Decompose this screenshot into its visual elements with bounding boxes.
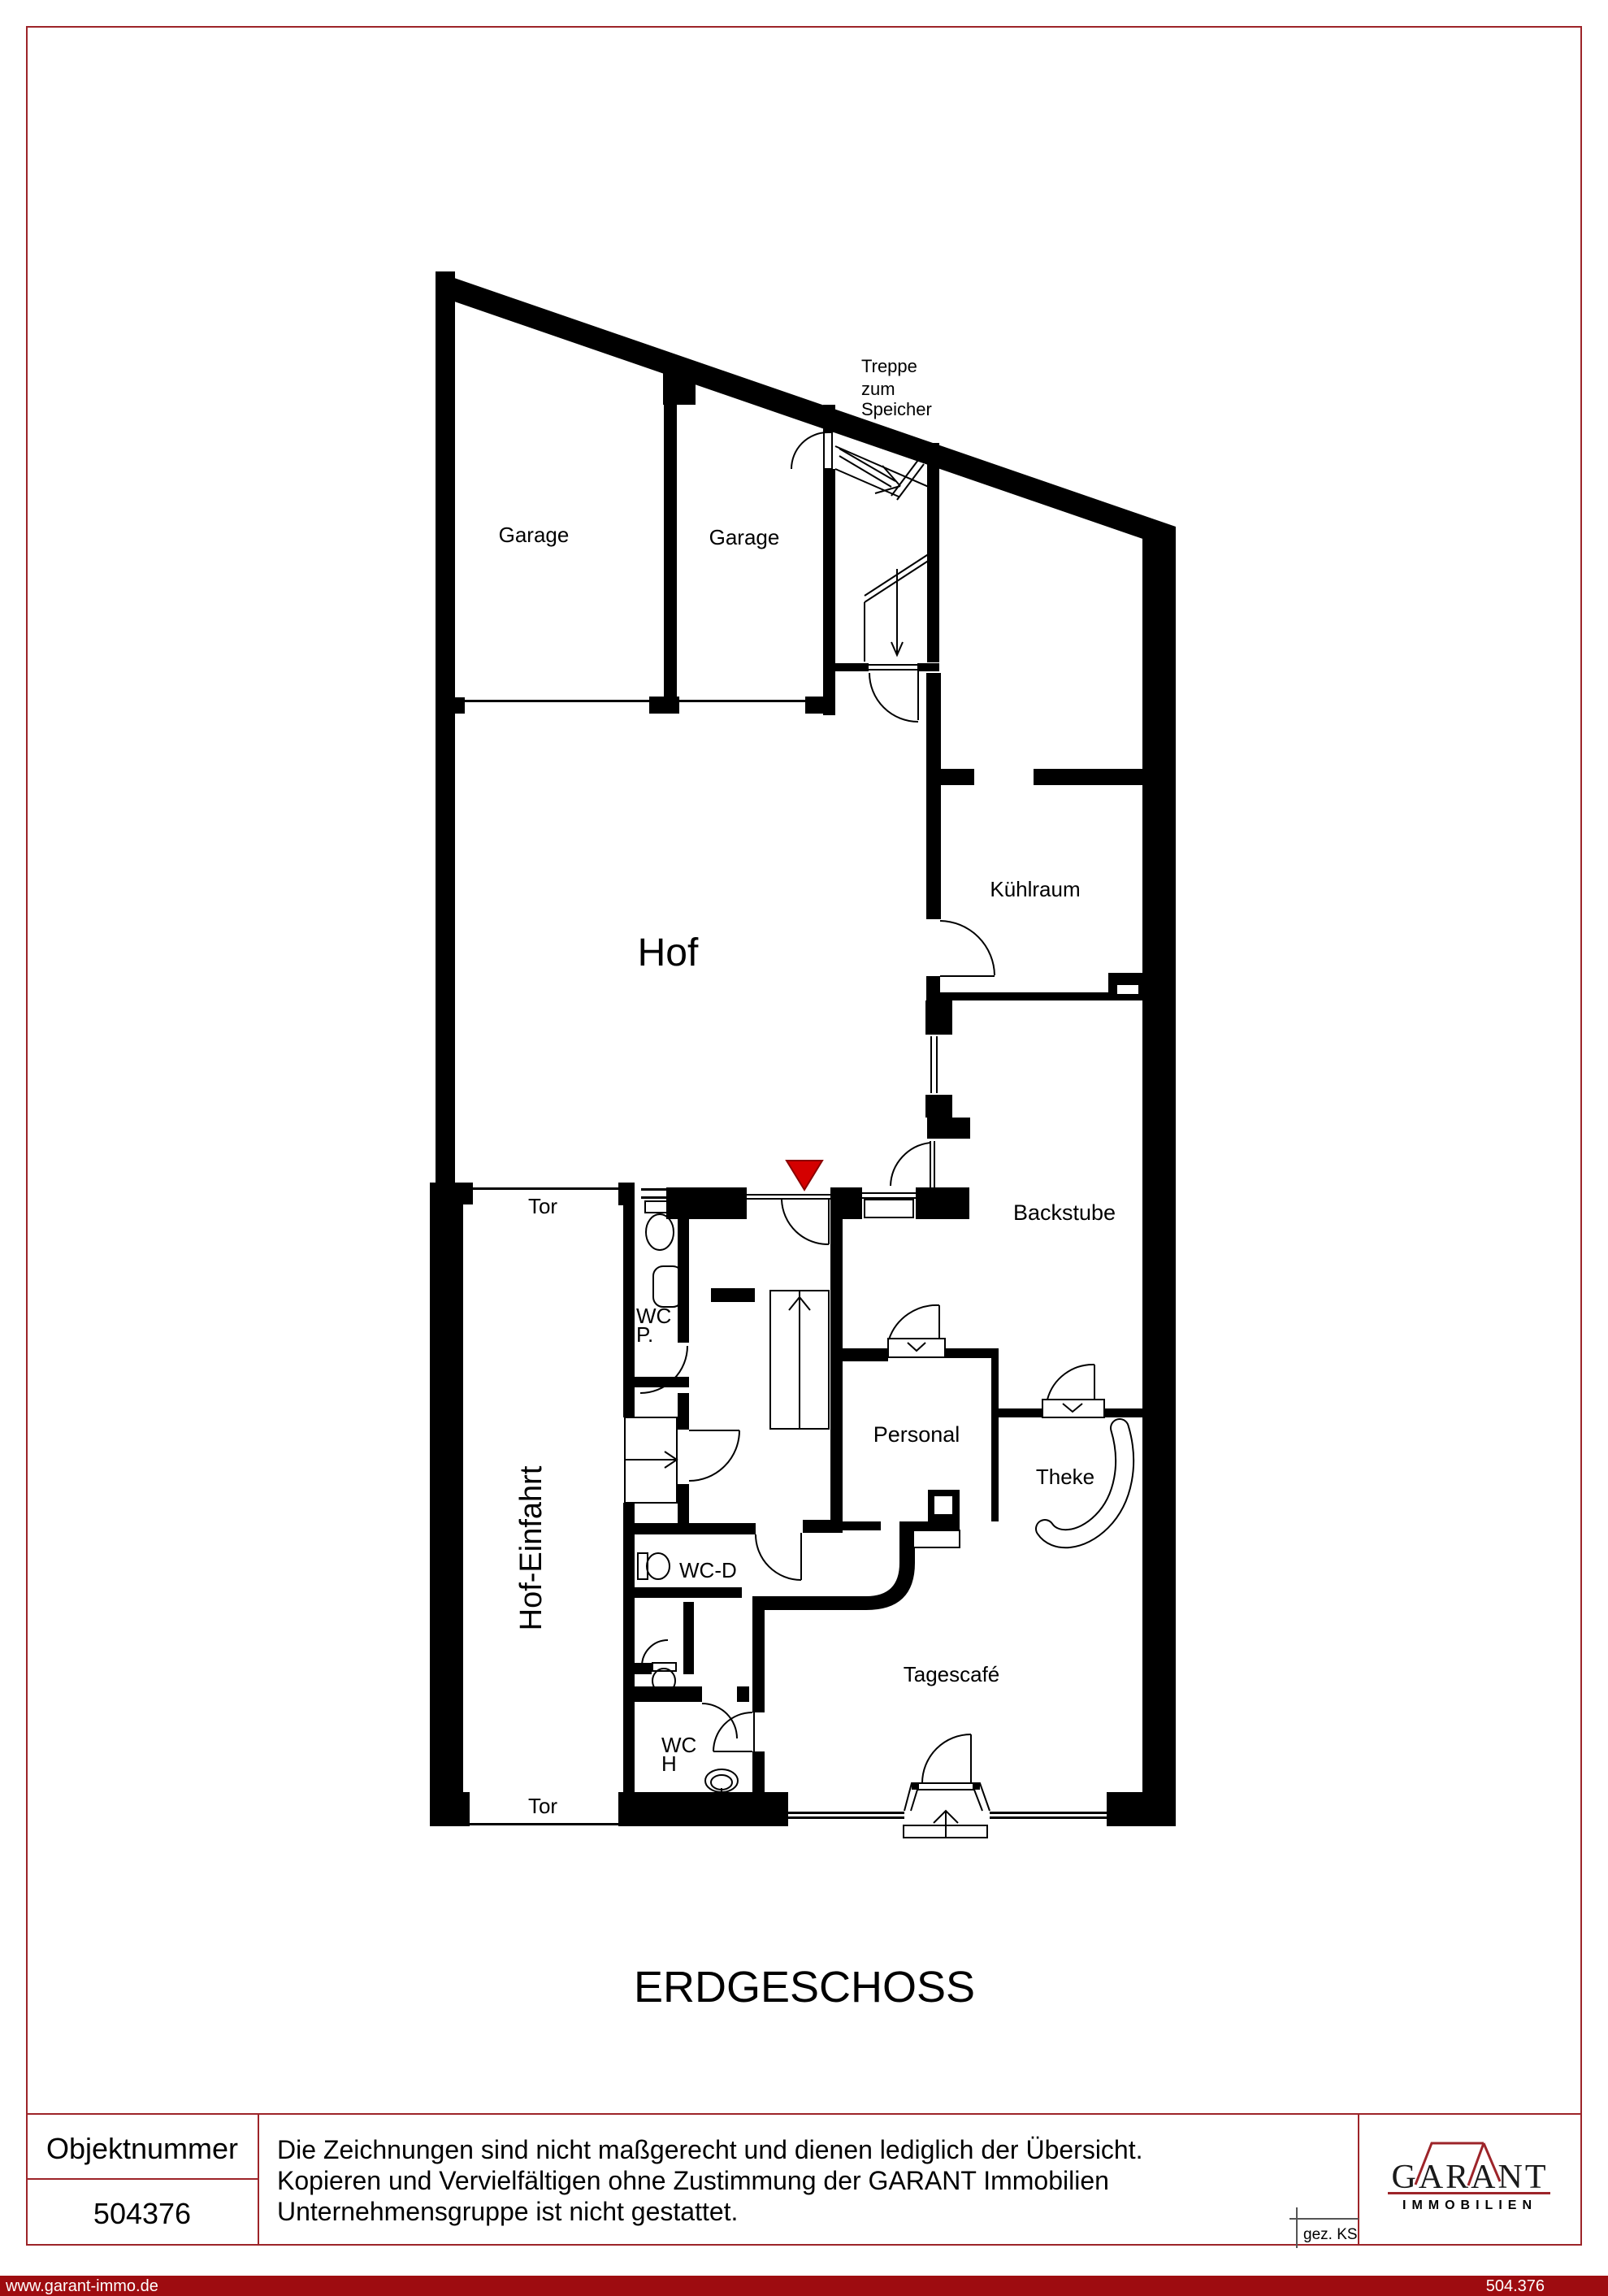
svg-text:Kopieren und Vervielfältigen o: Kopieren und Vervielfältigen ohne Zustim…	[277, 2166, 1109, 2195]
svg-text:Kühlraum: Kühlraum	[990, 877, 1080, 901]
svg-text:Objektnummer: Objektnummer	[46, 2132, 238, 2165]
svg-text:Speicher: Speicher	[861, 399, 932, 419]
svg-text:gez. KS: gez. KS	[1303, 2226, 1358, 2243]
svg-text:www.garant-immo.de: www.garant-immo.de	[5, 2277, 158, 2295]
svg-text:zum: zum	[861, 379, 895, 399]
svg-text:H: H	[661, 1751, 677, 1776]
svg-text:Backstube: Backstube	[1013, 1200, 1116, 1225]
svg-text:IMMOBILIEN: IMMOBILIEN	[1402, 2198, 1537, 2212]
svg-text:WC-D: WC-D	[679, 1558, 737, 1582]
svg-text:504376: 504376	[93, 2197, 191, 2230]
svg-text:P.: P.	[636, 1322, 653, 1347]
svg-text:Theke: Theke	[1036, 1465, 1094, 1489]
svg-text:Unternehmensgruppe ist nicht g: Unternehmensgruppe ist nicht gestattet.	[277, 2197, 738, 2226]
svg-text:Tor: Tor	[528, 1194, 557, 1218]
svg-text:ERDGESCHOSS: ERDGESCHOSS	[634, 1963, 975, 2012]
svg-text:Treppe: Treppe	[861, 356, 917, 376]
svg-text:GARANT: GARANT	[1392, 2159, 1549, 2196]
svg-text:Garage: Garage	[499, 523, 570, 547]
svg-text:504.376: 504.376	[1486, 2277, 1545, 2295]
svg-text:Hof-Einfahrt: Hof-Einfahrt	[514, 1465, 548, 1630]
svg-text:Die Zeichnungen sind nicht maß: Die Zeichnungen sind nicht maßgerecht un…	[277, 2135, 1143, 2164]
svg-text:Tor: Tor	[528, 1794, 557, 1818]
svg-text:Garage: Garage	[709, 525, 780, 549]
svg-text:Tagescafé: Tagescafé	[904, 1662, 1000, 1686]
svg-text:Hof: Hof	[638, 931, 699, 974]
svg-text:Personal: Personal	[873, 1422, 960, 1447]
